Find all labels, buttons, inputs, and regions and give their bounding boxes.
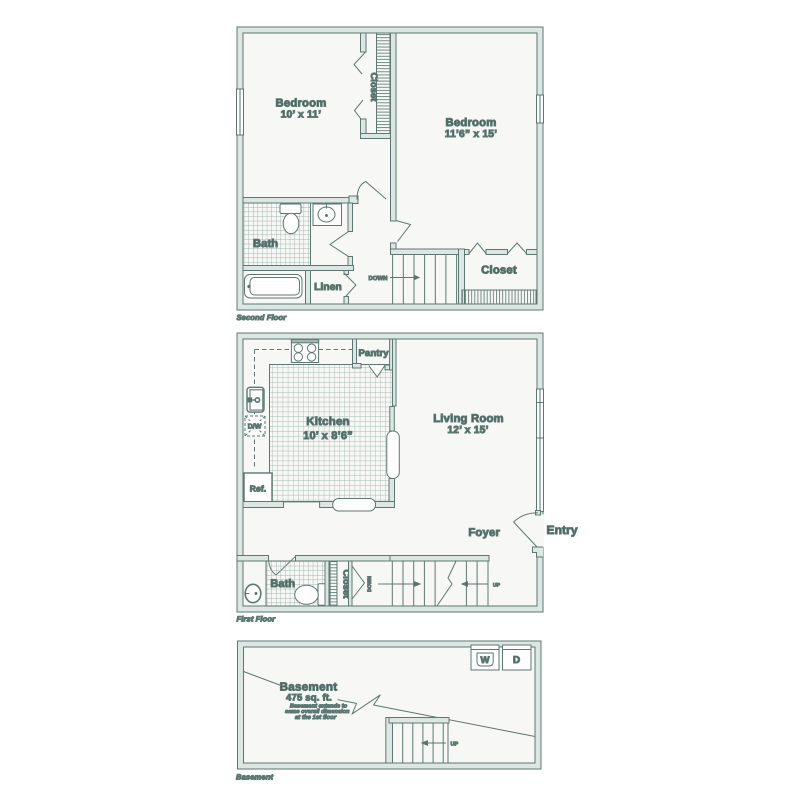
svg-text:11’6” x 15’: 11’6” x 15’	[445, 129, 498, 140]
svg-text:Bath: Bath	[270, 578, 295, 590]
svg-text:12’ x 15’: 12’ x 15’	[447, 425, 488, 436]
svg-text:UP: UP	[493, 583, 501, 589]
svg-text:DOWN: DOWN	[367, 576, 373, 592]
svg-text:same overall dimension: same overall dimension	[285, 708, 350, 715]
svg-text:at the 1st floor: at the 1st floor	[295, 714, 337, 721]
svg-text:Bedroom: Bedroom	[446, 117, 497, 129]
svg-text:First Floor: First Floor	[237, 615, 277, 624]
svg-text:D/W: D/W	[248, 423, 262, 431]
svg-text:475 sq. ft.: 475 sq. ft.	[286, 692, 332, 703]
svg-text:D: D	[513, 655, 520, 666]
svg-text:Living Room: Living Room	[433, 413, 504, 425]
svg-text:Bath: Bath	[253, 238, 278, 250]
svg-text:Entry: Entry	[547, 523, 578, 537]
svg-text:Bedroom: Bedroom	[276, 98, 327, 110]
svg-text:Kitchen: Kitchen	[306, 416, 350, 428]
svg-text:Linen: Linen	[314, 282, 342, 293]
svg-text:Second Floor: Second Floor	[237, 313, 288, 322]
svg-text:Ref.: Ref.	[250, 484, 266, 494]
svg-text:W: W	[480, 655, 489, 666]
svg-text:10’ x 11’: 10’ x 11’	[281, 110, 322, 121]
svg-text:UP: UP	[451, 742, 459, 748]
svg-text:Foyer: Foyer	[468, 527, 500, 539]
svg-text:DOWN: DOWN	[369, 275, 388, 282]
svg-text:Pantry: Pantry	[359, 348, 390, 359]
svg-text:Closet: Closet	[481, 264, 517, 276]
svg-text:Basement: Basement	[236, 773, 273, 782]
svg-text:10’ x 8’6”: 10’ x 8’6”	[303, 430, 353, 442]
